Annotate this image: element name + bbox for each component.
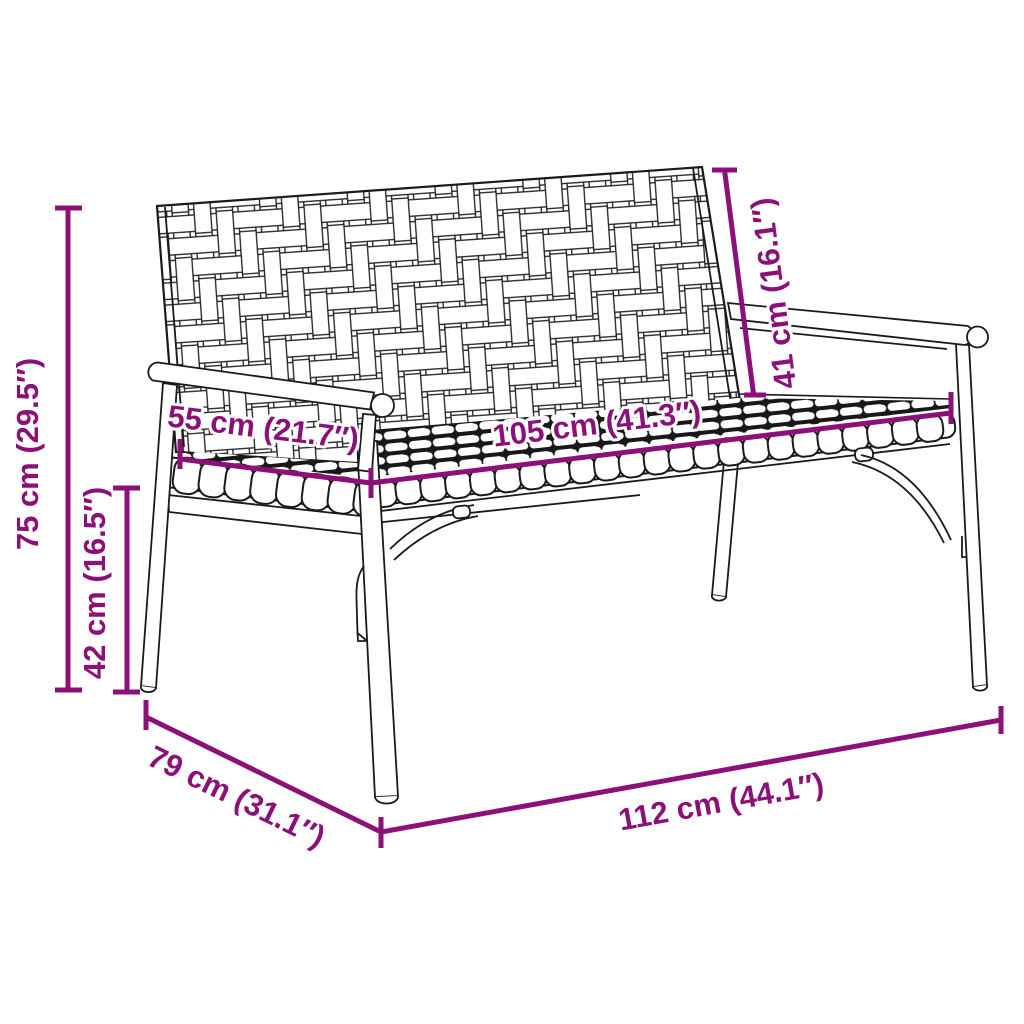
svg-text:75 cm (29.5″): 75 cm (29.5″) xyxy=(10,358,45,550)
svg-text:42 cm (16.5″): 42 cm (16.5″) xyxy=(77,487,112,679)
